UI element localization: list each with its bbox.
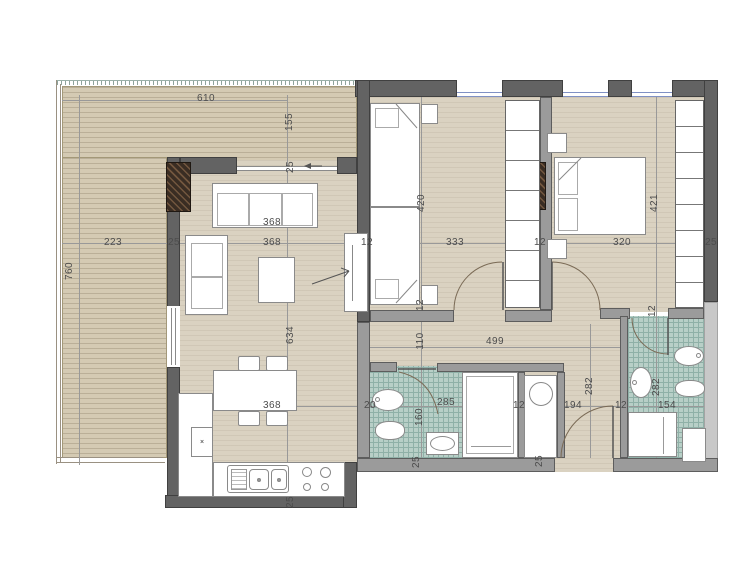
annotation-overlay [0, 0, 748, 582]
floor-plan-canvas: × × × [0, 0, 748, 582]
door-swing-arc [632, 318, 668, 354]
door-swing-arc [552, 262, 600, 310]
door-swing-arc [561, 406, 613, 458]
terrace-entry-arrow [304, 163, 322, 169]
blanket-fold-line [396, 280, 417, 303]
blanket-fold-line [559, 158, 581, 180]
door-swing-arc [399, 372, 438, 414]
door-swing-arc [454, 262, 502, 310]
tv-direction-arrow [312, 268, 349, 284]
blanket-fold-line [396, 104, 417, 128]
